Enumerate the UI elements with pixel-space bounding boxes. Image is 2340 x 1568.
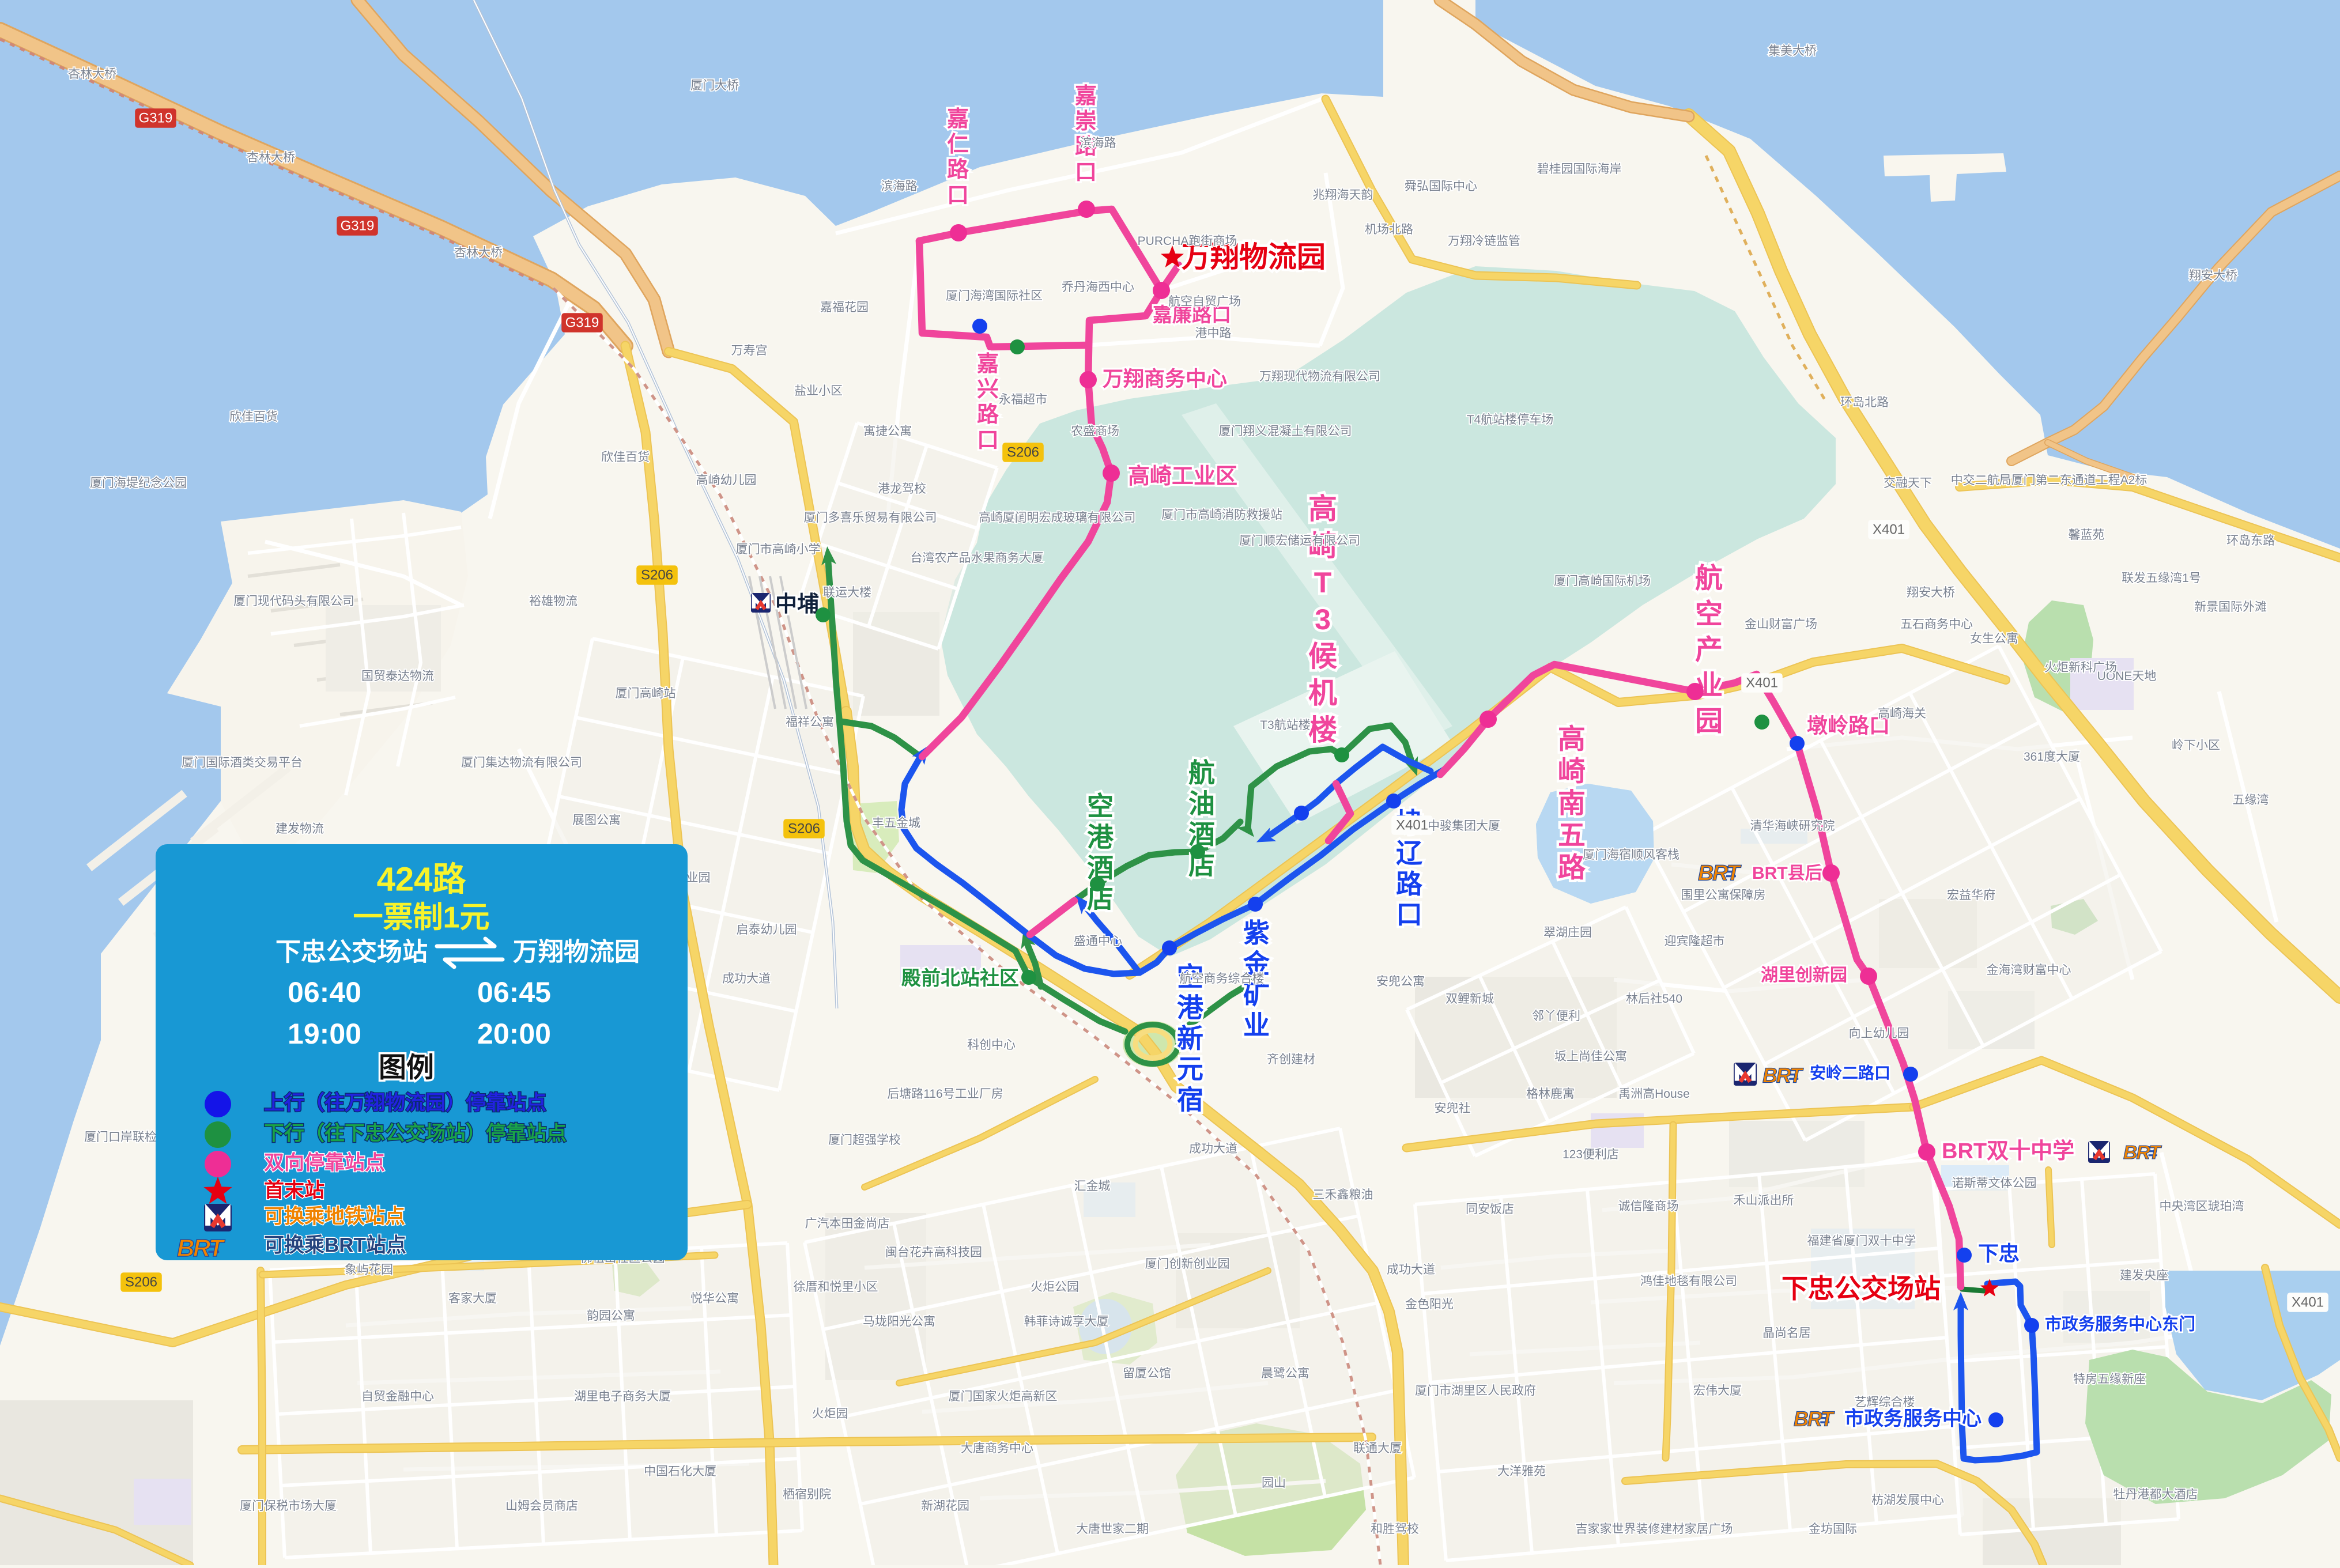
svg-text:联运大楼: 联运大楼	[823, 586, 871, 599]
svg-text:厦门集达物流有限公司: 厦门集达物流有限公司	[461, 756, 582, 769]
svg-text:山姆会员商店: 山姆会员商店	[505, 1499, 578, 1513]
svg-text:舜弘国际中心: 舜弘国际中心	[1405, 180, 1477, 193]
svg-text:鸿佳地毯有限公司: 鸿佳地毯有限公司	[1640, 1275, 1737, 1288]
svg-text:吉家家世界装修建材家居广场: 吉家家世界装修建材家居广场	[1576, 1522, 1733, 1536]
svg-text:航空商务综合楼: 航空商务综合楼	[1180, 972, 1265, 985]
svg-text:三禾鑫粮油: 三禾鑫粮油	[1313, 1188, 1373, 1201]
svg-text:牡丹港都大酒店: 牡丹港都大酒店	[2113, 1488, 2198, 1501]
svg-text:PURCHA跑街商场: PURCHA跑街商场	[1138, 235, 1237, 248]
svg-text:口: 口	[947, 183, 969, 207]
svg-text:福建省厦门双十中学: 福建省厦门双十中学	[1807, 1234, 1916, 1248]
svg-text:双鲤新城: 双鲤新城	[1445, 992, 1494, 1006]
svg-text:大唐商务中心: 大唐商务中心	[961, 1442, 1033, 1455]
svg-text:特房五缘新座: 特房五缘新座	[2073, 1373, 2146, 1386]
svg-text:火炬园: 火炬园	[812, 1407, 848, 1420]
svg-text:G319: G319	[139, 110, 173, 126]
svg-text:厦门国际酒类交易平台: 厦门国际酒类交易平台	[182, 756, 303, 769]
svg-text:和胜驾校: 和胜驾校	[1371, 1522, 1419, 1536]
svg-text:嘉福花园: 嘉福花园	[820, 301, 869, 314]
svg-text:路: 路	[1558, 852, 1586, 883]
svg-text:金海湾财富中心: 金海湾财富中心	[1987, 964, 2071, 977]
svg-text:嘉: 嘉	[977, 352, 999, 376]
svg-text:裕雄物流: 裕雄物流	[529, 595, 578, 608]
svg-text:路: 路	[977, 403, 999, 427]
svg-text:厦门市高崎小学: 厦门市高崎小学	[736, 543, 821, 556]
svg-text:厦门海堤纪念公园: 厦门海堤纪念公园	[90, 477, 187, 490]
svg-text:港: 港	[1177, 993, 1204, 1023]
svg-text:汇金城: 汇金城	[1074, 1180, 1111, 1193]
svg-text:BRT: BRT	[177, 1234, 225, 1261]
svg-text:五: 五	[1558, 821, 1586, 851]
svg-text:金山财富广场: 金山财富广场	[1745, 618, 1817, 631]
svg-text:123便利店: 123便利店	[1562, 1148, 1619, 1161]
svg-text:X401: X401	[1396, 817, 1428, 833]
svg-text:丰五金城: 丰五金城	[872, 817, 920, 830]
svg-text:厦门保税市场大厦: 厦门保税市场大厦	[240, 1499, 337, 1513]
svg-text:20:00: 20:00	[477, 1018, 551, 1050]
svg-text:杏林大桥: 杏林大桥	[247, 151, 295, 164]
svg-text:五缘湾: 五缘湾	[2233, 794, 2269, 807]
svg-text:港: 港	[1087, 822, 1114, 852]
svg-text:建发物流: 建发物流	[275, 822, 324, 836]
svg-text:格林鹿寓: 格林鹿寓	[1526, 1087, 1575, 1101]
svg-text:路: 路	[1396, 869, 1423, 899]
svg-text:宿: 宿	[1177, 1085, 1203, 1115]
svg-text:杏林大桥: 杏林大桥	[454, 246, 503, 259]
svg-text:下忠: 下忠	[1978, 1242, 2020, 1265]
svg-text:园山: 园山	[1262, 1476, 1286, 1490]
svg-text:滨海路: 滨海路	[881, 180, 918, 193]
svg-text:崇: 崇	[1075, 109, 1097, 134]
svg-text:永福超市: 永福超市	[999, 393, 1047, 406]
svg-text:金坊国际: 金坊国际	[1809, 1522, 1857, 1536]
svg-text:图例: 图例	[379, 1053, 434, 1083]
svg-text:晶尚名居: 晶尚名居	[1762, 1327, 1811, 1340]
svg-text:成功大道: 成功大道	[1189, 1142, 1237, 1155]
svg-text:中骏集团大厦: 中骏集团大厦	[1428, 819, 1500, 833]
svg-text:新湖花园: 新湖花园	[921, 1499, 969, 1513]
svg-text:万寿宫: 万寿宫	[731, 344, 768, 357]
svg-text:19:00: 19:00	[288, 1018, 361, 1050]
svg-text:展图公寓: 展图公寓	[572, 814, 621, 827]
svg-text:S206: S206	[125, 1274, 157, 1290]
svg-text:航空自贸广场: 航空自贸广场	[1168, 295, 1241, 308]
svg-text:枋湖发展中心: 枋湖发展中心	[1871, 1494, 1944, 1507]
svg-text:环岛东路: 环岛东路	[2226, 534, 2275, 547]
svg-text:G319: G319	[341, 218, 375, 233]
svg-text:寓捷公寓: 寓捷公寓	[863, 425, 912, 438]
svg-text:万翔现代物流有限公司: 万翔现代物流有限公司	[1259, 370, 1380, 383]
svg-text:兆翔海天韵: 兆翔海天韵	[1313, 188, 1373, 202]
svg-text:嘉: 嘉	[947, 107, 969, 131]
svg-text:欣佳百货: 欣佳百货	[601, 451, 650, 464]
svg-text:航: 航	[1695, 564, 1723, 594]
svg-text:韵园公寓: 韵园公寓	[587, 1309, 635, 1323]
svg-text:紫: 紫	[1243, 918, 1270, 948]
svg-text:高崎海关: 高崎海关	[1878, 707, 1926, 720]
svg-text:中交二航局厦门第二东通道工程A2标: 中交二航局厦门第二东通道工程A2标	[1951, 474, 2147, 487]
svg-text:安岭二路口: 安岭二路口	[1810, 1064, 1890, 1082]
svg-text:高崎工业区: 高崎工业区	[1128, 464, 1237, 489]
svg-text:空: 空	[1087, 791, 1114, 821]
svg-text:坂上尚佳公寓: 坂上尚佳公寓	[1554, 1050, 1627, 1063]
svg-text:X401: X401	[1873, 522, 1905, 537]
svg-text:农盛商场: 农盛商场	[1071, 425, 1119, 438]
svg-text:盐业小区: 盐业小区	[794, 384, 843, 398]
svg-text:韩菲诗诚享大厦: 韩菲诗诚享大厦	[1024, 1315, 1109, 1328]
svg-text:高: 高	[1558, 724, 1586, 755]
svg-text:新景国际外滩: 新景国际外滩	[2194, 600, 2267, 614]
svg-text:安兜社: 安兜社	[1435, 1102, 1471, 1115]
svg-text:后塘路116号工业厂房: 后塘路116号工业厂房	[887, 1087, 1003, 1101]
svg-text:上行（往万翔物流园）停靠站点: 上行（往万翔物流园）停靠站点	[264, 1091, 546, 1114]
svg-text:齐创建材: 齐创建材	[1267, 1053, 1315, 1066]
svg-text:欣佳百货: 欣佳百货	[229, 410, 278, 424]
svg-text:厦门超强学校: 厦门超强学校	[828, 1134, 901, 1147]
svg-text:集美大桥: 集美大桥	[1768, 44, 1817, 58]
svg-text:油: 油	[1188, 789, 1215, 819]
svg-text:交融天下: 交融天下	[1884, 477, 1932, 490]
svg-text:厦门翔义混凝土有限公司: 厦门翔义混凝土有限公司	[1219, 425, 1352, 438]
svg-text:元: 元	[1177, 1054, 1203, 1084]
svg-text:厦门市高崎消防救援站: 厦门市高崎消防救援站	[1161, 508, 1282, 522]
svg-text:口: 口	[977, 428, 999, 452]
svg-text:艺辉综合楼: 艺辉综合楼	[1855, 1396, 1915, 1409]
svg-text:厦门国家火炬高新区: 厦门国家火炬高新区	[949, 1390, 1058, 1403]
svg-text:下行（往下忠公交场站）停靠站点: 下行（往下忠公交场站）停靠站点	[264, 1121, 567, 1144]
svg-text:厦门海湾国际社区: 厦门海湾国际社区	[946, 289, 1043, 303]
svg-text:同安饭店: 同安饭店	[1466, 1203, 1514, 1216]
svg-text:S206: S206	[641, 567, 673, 583]
svg-text:T: T	[1314, 566, 1332, 599]
svg-text:下忠公交场站: 下忠公交场站	[275, 938, 428, 966]
svg-text:安兜公寓: 安兜公寓	[1376, 975, 1425, 988]
svg-text:市政务服务中心: 市政务服务中心	[1844, 1407, 1982, 1430]
svg-text:建发央座: 建发央座	[2120, 1269, 2168, 1282]
svg-text:宏伟大厦: 宏伟大厦	[1693, 1384, 1742, 1397]
svg-text:环岛北路: 环岛北路	[1840, 396, 1889, 409]
svg-text:厦门高崎站: 厦门高崎站	[616, 687, 676, 700]
svg-text:火炬新科广场: 火炬新科广场	[2044, 661, 2117, 674]
svg-text:五石商务中心: 五石商务中心	[1900, 618, 1973, 631]
svg-text:科创中心: 科创中心	[967, 1038, 1016, 1052]
svg-text:栖宿别院: 栖宿别院	[783, 1488, 831, 1501]
svg-text:口: 口	[1075, 160, 1097, 184]
svg-text:迎宾隆超市: 迎宾隆超市	[1665, 935, 1725, 948]
svg-text:BRT双十中学: BRT双十中学	[1942, 1139, 2074, 1163]
svg-text:留厦公馆: 留厦公馆	[1123, 1367, 1171, 1380]
svg-text:06:40: 06:40	[288, 976, 361, 1008]
svg-text:杏林大桥: 杏林大桥	[68, 67, 116, 81]
svg-text:楼: 楼	[1308, 714, 1337, 746]
svg-text:BRT: BRT	[2123, 1142, 2162, 1163]
svg-text:诚信隆商场: 诚信隆商场	[1618, 1200, 1679, 1213]
svg-text:启泰幼儿园: 启泰幼儿园	[737, 923, 797, 936]
svg-text:T4航站楼停车场: T4航站楼停车场	[1467, 413, 1554, 426]
svg-text:高崎幼儿园: 高崎幼儿园	[696, 474, 757, 487]
svg-text:BRT: BRT	[1794, 1408, 1835, 1431]
svg-text:下忠公交场站: 下忠公交场站	[1782, 1274, 1941, 1303]
svg-text:航: 航	[1188, 758, 1215, 788]
svg-text:翔安大桥: 翔安大桥	[1907, 586, 1955, 599]
svg-text:崎: 崎	[1558, 756, 1586, 787]
svg-text:T3航站楼: T3航站楼	[1260, 719, 1311, 732]
svg-text:中埔: 中埔	[775, 592, 819, 617]
svg-text:市政务服务中心东门: 市政务服务中心东门	[2045, 1314, 2195, 1334]
svg-text:空: 空	[1695, 599, 1723, 630]
svg-text:客家大厦: 客家大厦	[448, 1292, 497, 1305]
svg-text:碧桂园国际海岸: 碧桂园国际海岸	[1537, 163, 1622, 176]
svg-text:南: 南	[1558, 788, 1586, 819]
svg-text:成功大道: 成功大道	[1387, 1263, 1435, 1276]
svg-text:火炬公园: 火炬公园	[1031, 1280, 1079, 1294]
svg-text:兴: 兴	[977, 377, 999, 402]
svg-text:馨蓝苑: 馨蓝苑	[2069, 528, 2105, 542]
svg-text:万翔物流园: 万翔物流园	[513, 938, 640, 966]
svg-text:园: 园	[1695, 706, 1723, 737]
svg-text:悦华公寓: 悦华公寓	[690, 1292, 739, 1305]
svg-text:BRT县后: BRT县后	[1752, 864, 1822, 883]
svg-text:宏益华府: 宏益华府	[1947, 889, 1995, 902]
svg-text:诺斯蒂文体公园: 诺斯蒂文体公园	[1952, 1177, 2037, 1190]
svg-text:厦门市湖里区人民政府: 厦门市湖里区人民政府	[1415, 1384, 1536, 1397]
svg-text:路: 路	[947, 158, 969, 182]
svg-text:大洋雅苑: 大洋雅苑	[1497, 1465, 1546, 1478]
svg-text:仁: 仁	[947, 133, 969, 157]
svg-text:厦门顺宏储运有限公司: 厦门顺宏储运有限公司	[1239, 534, 1360, 547]
svg-text:酒: 酒	[1188, 819, 1215, 849]
svg-text:双向停靠站点: 双向停靠站点	[264, 1151, 385, 1174]
svg-text:围里公寓保障房: 围里公寓保障房	[1681, 889, 1766, 902]
svg-text:滨海路: 滨海路	[1080, 137, 1116, 150]
svg-text:金色阳光: 金色阳光	[1405, 1298, 1454, 1311]
svg-text:S206: S206	[1007, 444, 1039, 460]
svg-text:G319: G319	[565, 315, 599, 330]
svg-text:台湾农产品水果商务大厦: 台湾农产品水果商务大厦	[911, 551, 1044, 565]
svg-text:中国石化大厦: 中国石化大厦	[644, 1465, 716, 1478]
svg-text:广汽本田金尚店: 广汽本田金尚店	[805, 1217, 890, 1230]
svg-text:厦门创新创业园: 厦门创新创业园	[1145, 1257, 1230, 1271]
svg-text:联通大厦: 联通大厦	[1353, 1442, 1402, 1455]
svg-text:向上幼儿园: 向上幼儿园	[1849, 1027, 1909, 1040]
svg-text:新: 新	[1177, 1023, 1203, 1053]
svg-text:成功大道: 成功大道	[722, 972, 771, 985]
svg-text:机: 机	[1308, 677, 1337, 709]
svg-text:可换乘地铁站点: 可换乘地铁站点	[264, 1205, 405, 1227]
svg-text:产: 产	[1695, 635, 1723, 666]
svg-text:06:45: 06:45	[477, 976, 551, 1008]
svg-text:候: 候	[1308, 640, 1337, 672]
svg-text:禾山派出所: 禾山派出所	[1734, 1194, 1794, 1207]
svg-text:翔安大桥: 翔安大桥	[2189, 269, 2237, 282]
svg-text:口: 口	[1396, 900, 1422, 930]
svg-text:女生公寓: 女生公寓	[1970, 632, 2018, 645]
svg-text:岭下小区: 岭下小区	[2172, 739, 2220, 752]
svg-text:X401: X401	[2292, 1294, 2324, 1310]
svg-text:BRT: BRT	[1762, 1064, 1804, 1087]
svg-text:万翔冷链监管: 万翔冷链监管	[1448, 235, 1520, 248]
svg-text:首末站: 首末站	[264, 1179, 324, 1201]
svg-text:辽: 辽	[1396, 838, 1422, 868]
svg-text:港龙驾校: 港龙驾校	[878, 482, 926, 496]
svg-text:清华海峡研究院: 清华海峡研究院	[1750, 819, 1835, 833]
svg-text:厦门大桥: 厦门大桥	[690, 79, 739, 92]
svg-text:翠湖庄园: 翠湖庄园	[1543, 926, 1592, 939]
svg-text:徐厝和悦里小区: 徐厝和悦里小区	[794, 1280, 878, 1294]
svg-text:厦门高崎国际机场: 厦门高崎国际机场	[1554, 575, 1651, 588]
svg-text:禹洲高House: 禹洲高House	[1618, 1087, 1690, 1101]
svg-text:BRT: BRT	[1698, 861, 1742, 885]
svg-text:湖里电子商务大厦: 湖里电子商务大厦	[574, 1390, 671, 1403]
svg-text:万翔商务中心: 万翔商务中心	[1103, 367, 1227, 391]
svg-text:中央湾区琥珀湾: 中央湾区琥珀湾	[2160, 1200, 2244, 1213]
svg-text:高: 高	[1308, 493, 1337, 525]
svg-text:业: 业	[1243, 1010, 1270, 1040]
svg-text:乔丹海西中心: 乔丹海西中心	[1062, 281, 1134, 294]
svg-text:361度大厦: 361度大厦	[2024, 750, 2080, 764]
svg-text:邻丫便利: 邻丫便利	[1532, 1010, 1580, 1023]
svg-text:联发五缘湾1号: 联发五缘湾1号	[2122, 572, 2201, 585]
svg-text:一票制1元: 一票制1元	[353, 901, 490, 935]
svg-text:厦门多喜乐贸易有限公司: 厦门多喜乐贸易有限公司	[804, 511, 937, 524]
svg-text:马垅阳光公寓: 马垅阳光公寓	[863, 1315, 935, 1328]
svg-text:福祥公寓: 福祥公寓	[786, 716, 834, 729]
svg-text:S206: S206	[788, 821, 820, 836]
svg-text:盛通中心: 盛通中心	[1074, 935, 1122, 948]
svg-text:机场北路: 机场北路	[1365, 223, 1413, 236]
svg-text:殿前北站社区: 殿前北站社区	[901, 968, 1019, 989]
svg-text:晨鹭公寓: 晨鹭公寓	[1261, 1367, 1309, 1380]
svg-text:国贸泰达物流: 国贸泰达物流	[361, 670, 434, 683]
svg-text:港中路: 港中路	[1195, 327, 1232, 340]
svg-text:厦门海宿顺风客栈: 厦门海宿顺风客栈	[1583, 848, 1679, 862]
svg-text:X401: X401	[1746, 675, 1778, 690]
svg-text:嘉: 嘉	[1075, 84, 1097, 108]
svg-text:象屿花园: 象屿花园	[345, 1263, 393, 1276]
svg-text:3: 3	[1315, 603, 1331, 636]
svg-text:大唐世家二期: 大唐世家二期	[1076, 1522, 1149, 1536]
svg-text:林后社540: 林后社540	[1626, 992, 1682, 1006]
svg-text:厦门现代码头有限公司: 厦门现代码头有限公司	[233, 595, 354, 608]
svg-text:自贸金融中心: 自贸金融中心	[361, 1390, 434, 1403]
svg-text:厦门明宏成玻璃有限公司: 厦门明宏成玻璃有限公司	[1003, 511, 1136, 524]
svg-text:闽台花卉高科技园: 闽台花卉高科技园	[885, 1246, 982, 1259]
svg-text:湖里创新园: 湖里创新园	[1761, 966, 1847, 985]
svg-text:424路: 424路	[377, 860, 467, 898]
svg-text:可换乘BRT站点: 可换乘BRT站点	[264, 1234, 406, 1256]
